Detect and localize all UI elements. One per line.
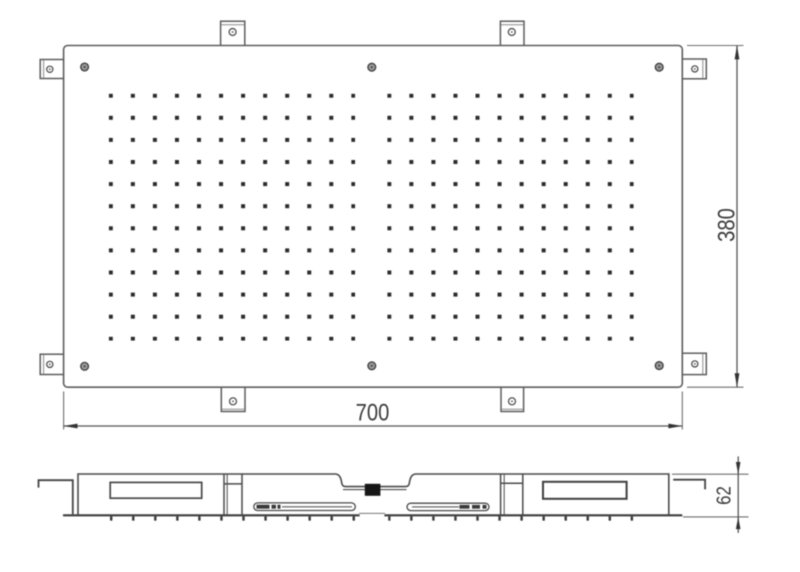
svg-text:700: 700	[356, 399, 390, 426]
svg-text:62: 62	[712, 486, 735, 505]
svg-text:380: 380	[713, 208, 740, 242]
